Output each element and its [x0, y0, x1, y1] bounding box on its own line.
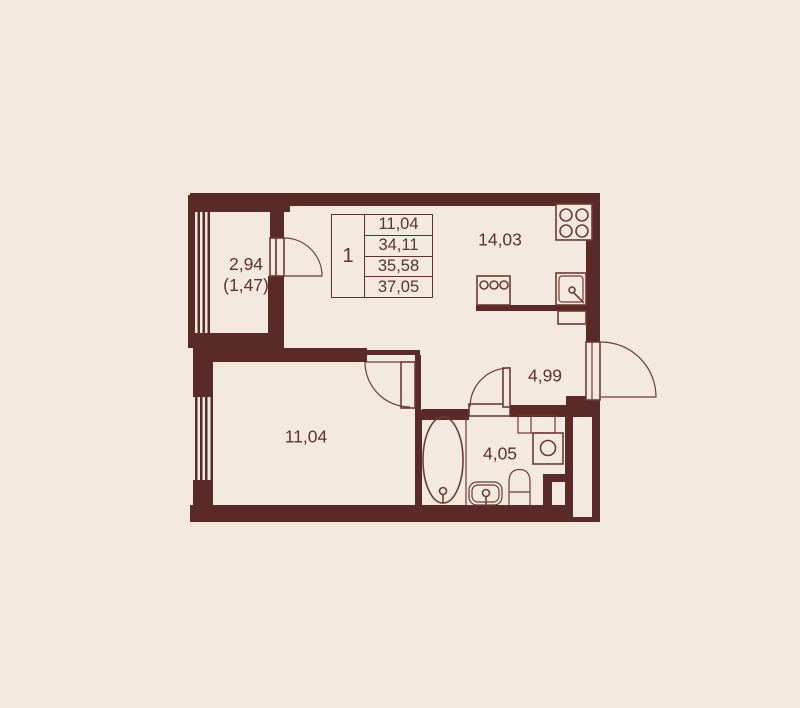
balcony-glazing-line	[208, 208, 211, 336]
bathroom-area-label: 4,05	[483, 444, 517, 465]
balcony-area-secondary: (1,47)	[223, 275, 269, 296]
bath-sink-drain	[483, 490, 490, 497]
room-window-line	[200, 397, 203, 480]
table-row-living-area: 11,04	[365, 215, 432, 236]
balcony-door-arc	[284, 238, 322, 276]
floor-plan-drawing	[0, 0, 800, 708]
balcony-glazing-line	[203, 208, 206, 336]
room-top-wall	[193, 348, 367, 362]
room-window-line	[205, 397, 208, 480]
room-window-line	[211, 397, 214, 480]
washing-machine-icon	[533, 433, 563, 464]
balcony-glazing-outer	[188, 195, 195, 340]
hallway-area-label: 4,99	[528, 366, 562, 387]
bathtub-drain	[440, 488, 447, 495]
rooms-count: 1	[332, 215, 365, 297]
bathroom-top-wall-left	[422, 409, 469, 420]
table-row-full-area: 37,05	[365, 277, 432, 297]
apartment-info-table: 1 11,04 34,11 35,58 37,05	[331, 214, 433, 298]
right-wall-lower	[592, 400, 600, 522]
table-row-total-area: 35,58	[365, 257, 432, 278]
utility-shaft	[573, 417, 592, 517]
table-row-area: 34,11	[365, 236, 432, 257]
entrance-door-arc	[601, 342, 656, 397]
shaft-left-strip	[565, 417, 573, 505]
toilet-icon	[509, 470, 530, 506]
area-rows: 11,04 34,11 35,58 37,05	[365, 215, 432, 297]
balcony-partition-upper	[270, 205, 284, 238]
bathroom-door-leaf	[503, 368, 510, 407]
kitchen-living-area-label: 14,03	[478, 230, 522, 251]
washer-niche-wall-v	[543, 474, 552, 505]
balcony-partition-lower	[268, 276, 284, 348]
room-hall-wall-stub	[415, 355, 421, 410]
room-door-lintel	[367, 350, 420, 355]
balcony-glazing-line	[198, 208, 201, 336]
bathroom-shelf	[518, 415, 555, 433]
living-room-area-label: 11,04	[285, 427, 328, 448]
floor-plan: 1 11,04 34,11 35,58 37,05 2,94 (1,47) 14…	[0, 0, 800, 708]
bathroom-left-wall	[415, 410, 422, 510]
bathtub-icon	[423, 417, 463, 503]
left-wall-pier-lower	[193, 480, 213, 510]
vent-box	[558, 311, 586, 324]
room-window-line	[195, 397, 198, 480]
balcony-area-value: 2,94	[223, 254, 269, 275]
balcony-area-label: 2,94 (1,47)	[223, 254, 269, 296]
balcony-door-frame	[270, 238, 276, 276]
kitchen-counter-bar	[476, 305, 586, 311]
room-door-leaf	[401, 362, 415, 408]
balcony-door-leaf	[276, 238, 284, 276]
entrance-door-leaf	[586, 342, 600, 400]
bottom-wall	[190, 505, 600, 522]
